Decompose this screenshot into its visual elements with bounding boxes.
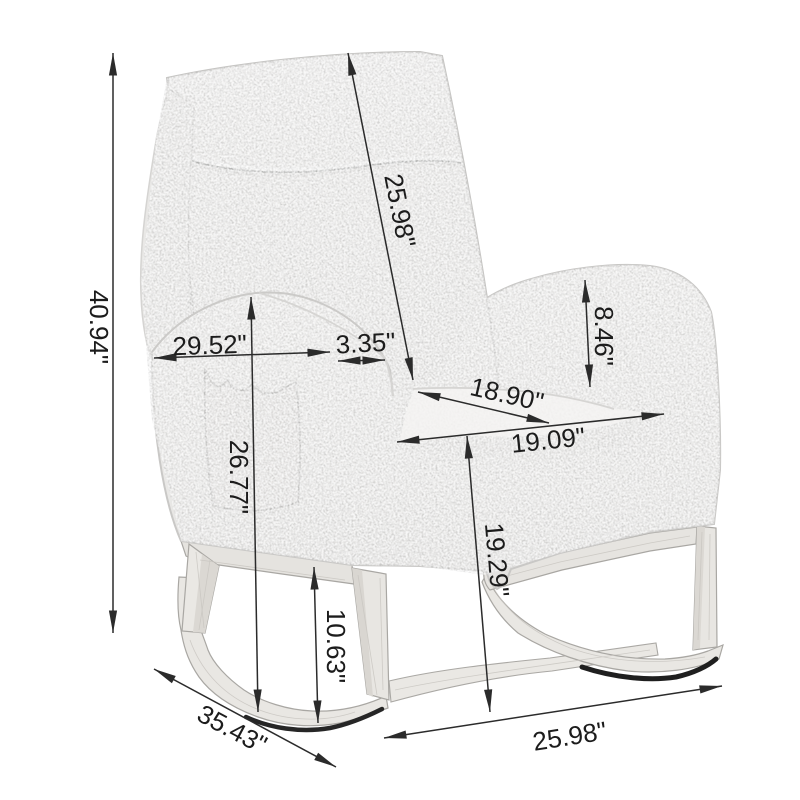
svg-text:26.77": 26.77" (224, 440, 254, 514)
svg-text:3.35": 3.35" (335, 326, 396, 359)
svg-text:40.94": 40.94" (84, 290, 114, 364)
svg-text:8.46": 8.46" (589, 306, 619, 366)
svg-text:29.52": 29.52" (172, 329, 247, 362)
svg-text:10.63": 10.63" (321, 609, 351, 683)
